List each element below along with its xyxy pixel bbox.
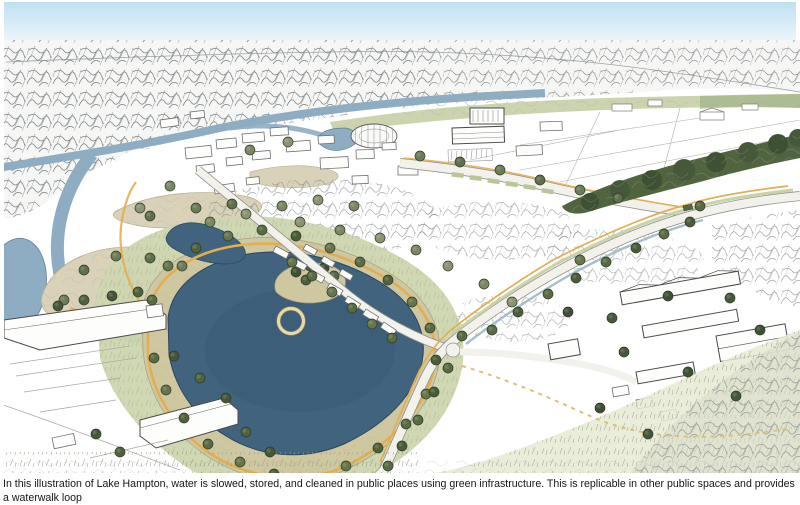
caption: In this illustration of Lake Hampton, wa… bbox=[0, 474, 800, 505]
intersection bbox=[446, 343, 460, 357]
sky bbox=[4, 2, 796, 42]
caption-line-1: In this illustration of Lake Hampton, wa… bbox=[3, 478, 797, 505]
left-margin bbox=[0, 0, 4, 473]
illustration-canvas bbox=[0, 0, 800, 473]
figure: In this illustration of Lake Hampton, wa… bbox=[0, 0, 800, 505]
